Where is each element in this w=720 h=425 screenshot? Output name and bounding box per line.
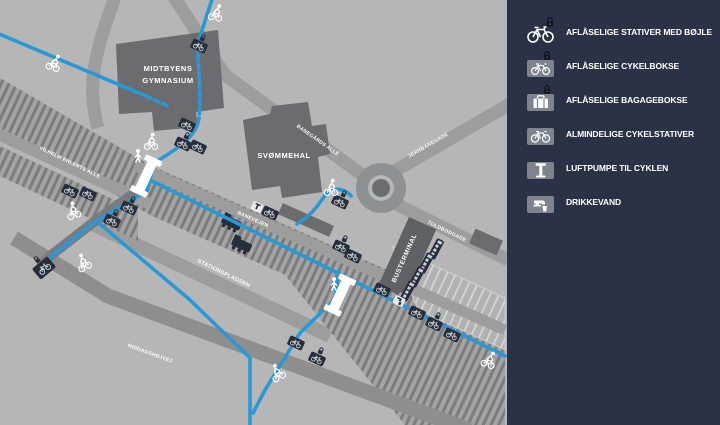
legend-item-locked-bike-boxes: AFLÅSELIGE CYKELBOKSE [521,54,720,78]
locked-luggage-box-icon [521,85,561,115]
svommehal-label: SVØMMEHAL [257,151,310,160]
drinking-water-icon [521,187,561,217]
legend-item-label: AFLÅSELIGE CYKELBOKSE [566,61,679,71]
legend-item-label: DRIKKEVAND [566,197,621,207]
station-map: MIDTBYENS GYMNASIUM SVØMMEHAL BUSTERMINA… [0,0,507,425]
legend-panel: AFLÅSELIGE STATIVER MED BØJLE AFLÅSELIGE… [507,0,720,425]
bike-pump-icon [521,153,561,183]
legend-item-locked-luggage-boxes: AFLÅSELIGE BAGAGEBOKSE [521,88,720,112]
legend-item-locked-hoop-stands: AFLÅSELIGE STATIVER MED BØJLE [521,20,720,44]
legend-item-bike-pump: LUFTPUMPE TIL CYKLEN [521,156,720,180]
roundabout [356,163,406,213]
gymnasium-label-line1: MIDTBYENS [144,64,193,73]
gymnasium-label-line2: GYMNASIUM [142,76,193,85]
locked-hoop-bike-stand-icon [521,17,561,47]
bike-stand-icon [521,119,561,149]
legend-item-label: AFLÅSELIGE STATIVER MED BØJLE [566,27,712,37]
locked-bike-box-icon [521,51,561,81]
bike-facility-map-screen: MIDTBYENS GYMNASIUM SVØMMEHAL BUSTERMINA… [0,0,720,425]
map-area: MIDTBYENS GYMNASIUM SVØMMEHAL BUSTERMINA… [0,0,507,425]
legend-item-label: LUFTPUMPE TIL CYKLEN [566,163,668,173]
legend-item-ordinary-stands: ALMINDELIGE CYKELSTATIVER [521,122,720,146]
legend-item-label: AFLÅSELIGE BAGAGEBOKSE [566,95,688,105]
legend-item-label: ALMINDELIGE CYKELSTATIVER [566,129,694,139]
legend-item-drinking-water: DRIKKEVAND [521,190,720,214]
